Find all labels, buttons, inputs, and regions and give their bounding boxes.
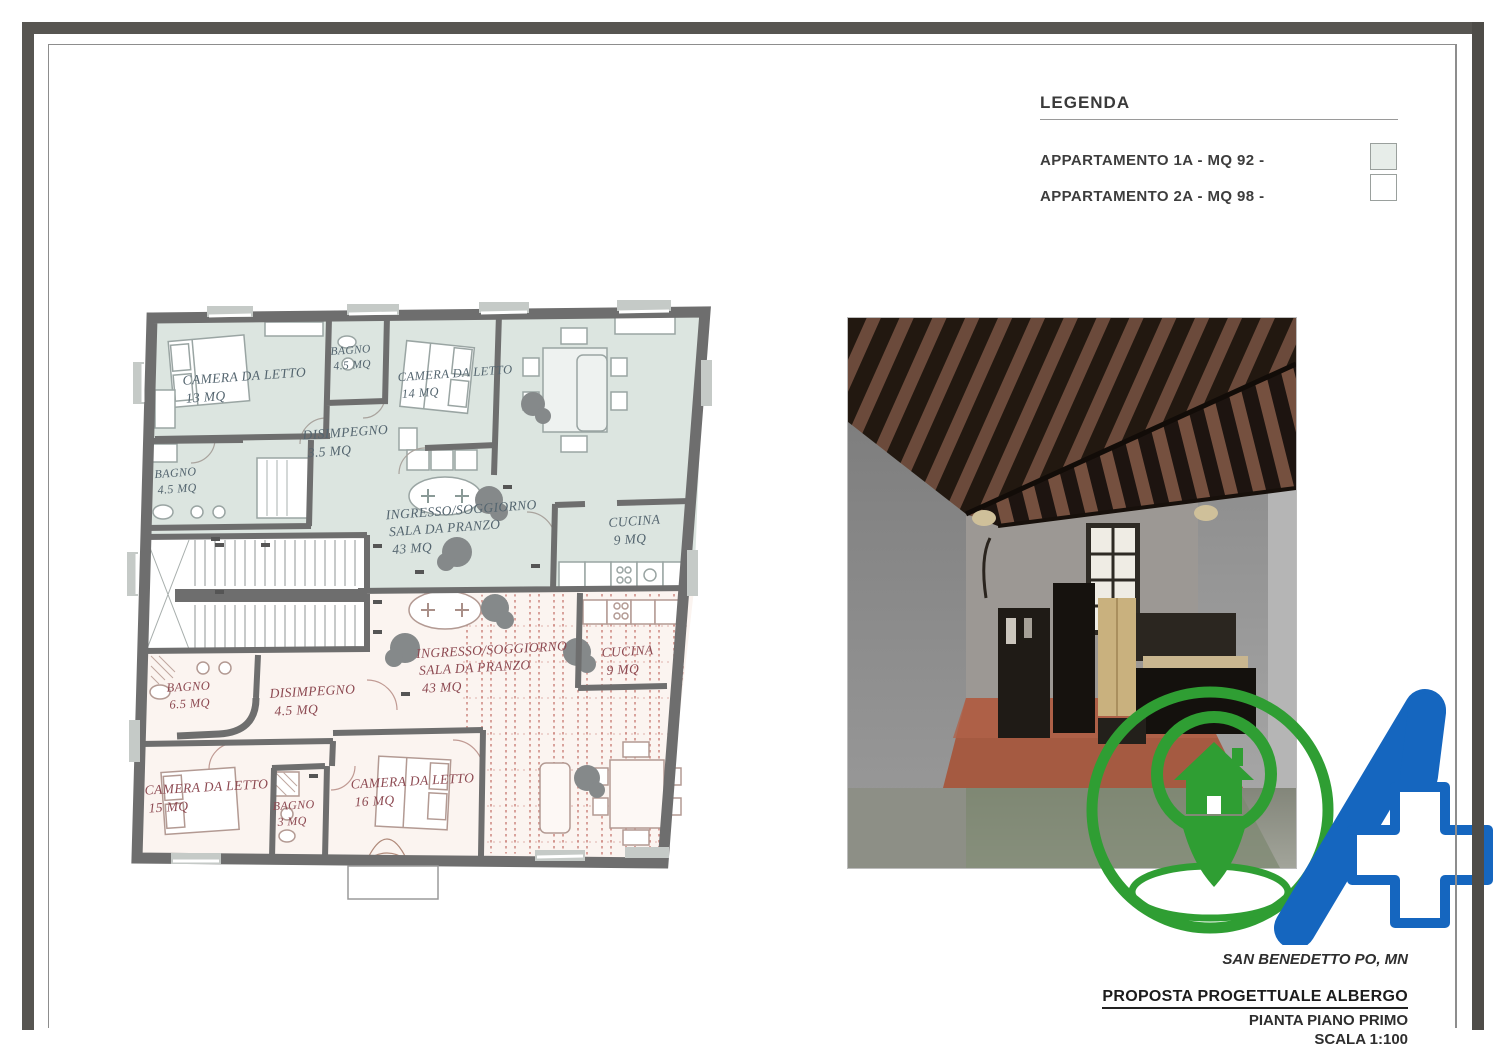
agency-logo [1080,678,1500,945]
legend-title: LEGENDA [1040,93,1410,113]
legend: LEGENDA APPARTAMENTO 1A - MQ 92 - APPART… [1040,93,1410,210]
room-area-camera15: 15 MQ [148,798,189,815]
room-area-camera16: 16 MQ [354,792,395,809]
legend-swatch-2a [1370,174,1397,201]
room-area-soggiorno-1a: 43 MQ [392,539,433,557]
room-label-bagno-small-2a: BAGNO [272,797,315,813]
drawing-title: PIANTA PIANO PRIMO [1102,1012,1408,1029]
sconce-lamp-right [1194,505,1218,521]
drawing-sheet: LEGENDA APPARTAMENTO 1A - MQ 92 - APPART… [0,0,1500,1061]
page-border-top [22,22,1484,34]
room-label-bagno-2a: BAGNO [166,678,210,694]
sconce-lamp-left [972,510,996,526]
legend-item-1a: APPARTAMENTO 1A - MQ 92 - [1040,138,1410,174]
room-area-bagno-small-2a: 3 MQ [276,813,307,829]
room-area-cucina-1a: 9 MQ [613,531,647,548]
legend-swatch-1a [1370,143,1397,170]
room-area-camera13: 13 MQ [185,388,226,406]
inner-frame-left [48,44,49,1028]
title-block: SAN BENEDETTO PO, MN PROPOSTA PROGETTUAL… [1102,951,1408,1048]
stair-landing-wall [175,589,367,602]
legend-item-2a: APPARTAMENTO 2A - MQ 98 - [1040,174,1410,210]
inner-frame-right [1455,44,1457,1028]
inner-frame-top [48,44,1456,45]
room-area-soggiorno-2a: 43 MQ [422,679,463,696]
page-border-right [1472,22,1484,1030]
legend-item-2a-label: APPARTAMENTO 2A - MQ 98 - [1040,188,1264,205]
entrance-stoop [348,866,438,899]
room-area-camera14: 14 MQ [401,384,439,401]
room-area-cucina-2a: 9 MQ [606,661,639,678]
project-title: PROPOSTA PROGETTUALE ALBERGO [1102,988,1408,1009]
legend-underline [1040,119,1398,120]
page-border-left [22,22,34,1030]
legend-item-1a-label: APPARTAMENTO 1A - MQ 92 - [1040,152,1264,169]
room-label-bagno-left-1a: BAGNO [154,464,197,481]
floor-plan: CAMERA DA LETTO 13 MQ BAGNO 4.5 MQ CAMER… [115,300,745,910]
room-area-disimpegno-2a: 4.5 MQ [274,701,318,718]
drawing-scale: SCALA 1:100 [1102,1031,1408,1048]
room-area-bagno-2a: 6.5 MQ [169,695,210,711]
room-area-bagno-left-1a: 4.5 MQ [157,480,197,497]
project-location: SAN BENEDETTO PO, MN [1102,951,1408,968]
room-label-cucina-2a: CUCINA [601,642,654,660]
house-icon [1174,742,1254,814]
room-area-disimpegno-1a: 3.5 MQ [306,442,352,460]
